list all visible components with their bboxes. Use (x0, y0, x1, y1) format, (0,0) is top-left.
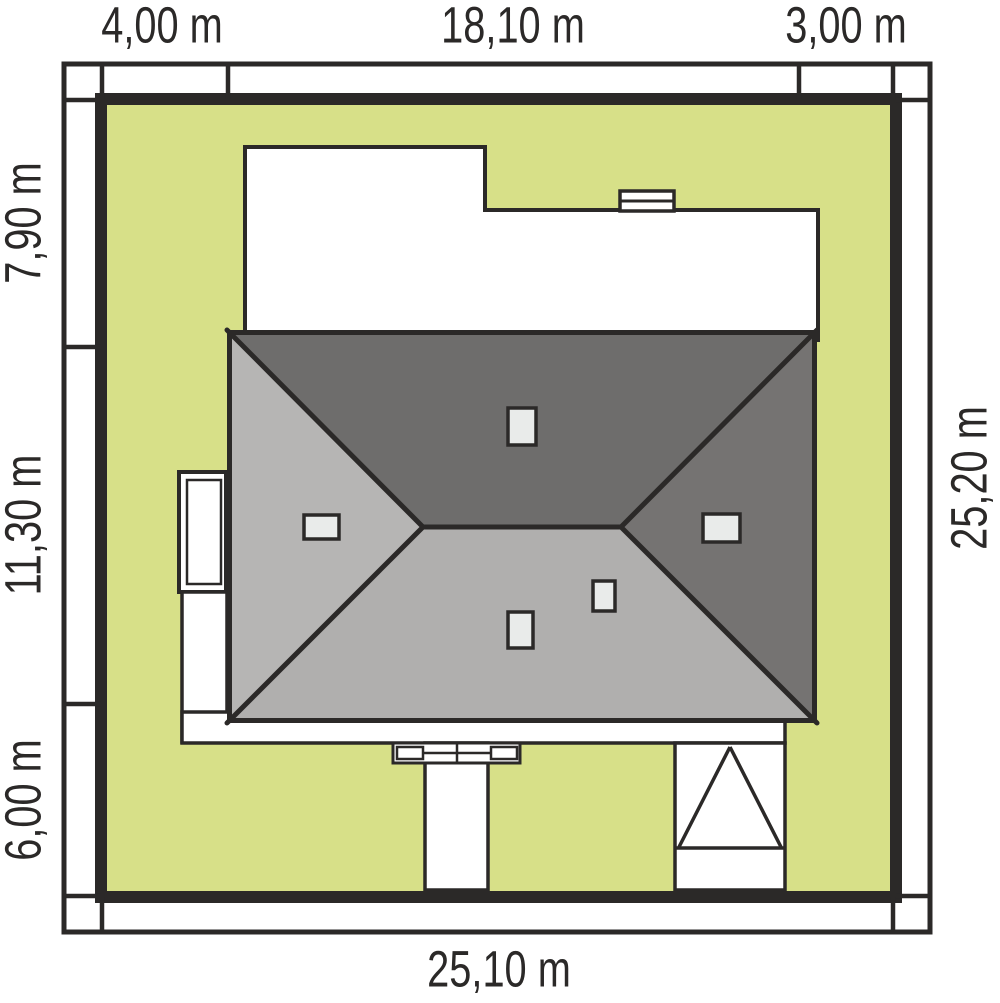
entrance-steps (393, 743, 520, 763)
dim-label-top-left: 4,00 m (101, 0, 223, 53)
entrance-walkway (425, 743, 488, 890)
chimney-south-face-center (508, 612, 533, 648)
chimney-north-face (508, 408, 536, 445)
dim-label-left-upper: 7,90 m (0, 162, 51, 284)
dim-label-bottom: 25,10 m (427, 941, 571, 998)
chimney-east-face (703, 514, 740, 542)
hip-roof (227, 330, 817, 723)
dim-label-left-lower: 6,00 m (0, 739, 51, 861)
dim-label-right: 25,20 m (941, 406, 998, 550)
chimney-west-face (304, 515, 339, 539)
site-plan-drawing: 4,00 m 18,10 m 3,00 m 7,90 m 11,30 m 6,0… (0, 0, 1000, 1003)
dim-label-left-middle: 11,30 m (0, 455, 51, 596)
site-plan-page: 4,00 m 18,10 m 3,00 m 7,90 m 11,30 m 6,0… (0, 0, 1000, 1003)
dim-label-top-right: 3,00 m (785, 0, 907, 53)
chimney-south-face-small (593, 581, 615, 611)
dim-label-top-center: 18,10 m (441, 0, 585, 53)
garage-driveway (675, 743, 785, 890)
north-wall-vent (620, 191, 674, 211)
west-bay-window (179, 472, 226, 592)
